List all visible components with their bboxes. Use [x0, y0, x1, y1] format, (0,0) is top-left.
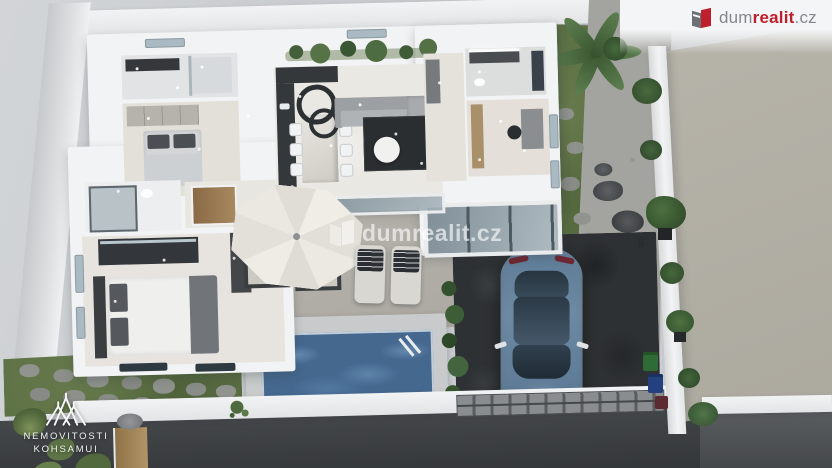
- dining-chair: [290, 163, 303, 176]
- waste-bin-green: [643, 352, 658, 371]
- umbrella-hub: [293, 233, 301, 241]
- potted-plant: [678, 368, 700, 388]
- sun-lounger: [354, 245, 386, 304]
- waste-bin-blue: [648, 374, 663, 393]
- dining-chair: [289, 123, 302, 136]
- shower: [89, 185, 138, 232]
- headboard: [93, 276, 107, 358]
- agency-line2: KOHSAMUI: [33, 443, 98, 456]
- waste-bin-dark: [655, 396, 668, 409]
- wardrobe: [127, 105, 199, 127]
- floorplan-render-scene: dumrealit.cz dumrealit.cz NEMOVITOSTI KO…: [0, 0, 832, 468]
- window: [550, 160, 560, 188]
- dumrealit-cube-icon: [692, 6, 712, 30]
- lounger-towel: [393, 250, 420, 273]
- agency-line1: NEMOVITOSTI: [23, 430, 108, 443]
- kitchen-sink: [280, 103, 290, 109]
- brand-prefix: dum: [719, 8, 753, 27]
- desk: [521, 109, 544, 150]
- potted-plant: [666, 310, 694, 334]
- pillow: [173, 134, 195, 149]
- wood-wardrobe: [471, 104, 485, 168]
- master-wardrobe: [98, 237, 199, 266]
- lounger-towel: [357, 249, 384, 272]
- window: [76, 307, 86, 339]
- car-rear-window: [515, 271, 569, 299]
- stepping-stones: [19, 364, 39, 378]
- street-right: [700, 408, 832, 468]
- kitchen-counter-top: [276, 66, 338, 84]
- pillow: [110, 318, 129, 346]
- ceiling-lights: [136, 67, 139, 70]
- blanket: [189, 275, 219, 354]
- potted-plant: [660, 262, 684, 284]
- front-wall-right: [702, 395, 832, 414]
- potted-plant: [632, 78, 662, 104]
- doormat-walkway: [113, 427, 148, 468]
- watermark: dumrealit.cz: [330, 218, 502, 248]
- master-bed: [93, 273, 225, 358]
- mountain-peaks-icon: [40, 390, 92, 430]
- window: [145, 38, 185, 48]
- brand-suffix: .cz: [795, 8, 817, 27]
- shower: [191, 57, 232, 94]
- window: [195, 363, 235, 372]
- shower-glass: [531, 51, 544, 91]
- brand-wordmark: dumrealit.cz: [719, 8, 817, 28]
- bathroom-vanity: [125, 58, 179, 71]
- wardrobe-mirror: [100, 239, 196, 245]
- dining-chair: [340, 164, 353, 177]
- window: [549, 114, 559, 148]
- cube-outline-icon: [330, 218, 354, 248]
- pool-ladder: [398, 338, 414, 357]
- car-roof: [514, 297, 570, 345]
- rock: [611, 210, 644, 233]
- stepping-stones: [557, 108, 574, 120]
- pillow: [109, 284, 128, 312]
- bathroom-vanity: [469, 51, 519, 63]
- hall-cabinet: [425, 59, 440, 103]
- sun-lounger: [390, 246, 422, 305]
- brand-accent: realit: [753, 8, 795, 27]
- pillow: [147, 134, 169, 149]
- logo-dumrealit: dumrealit.cz: [692, 6, 817, 30]
- dining-chair: [290, 143, 303, 156]
- potted-plant: [640, 140, 662, 160]
- logo-nemovitosti-kohsamui: NEMOVITOSTI KOHSAMUI: [16, 390, 116, 456]
- wooden-door: [191, 185, 238, 226]
- plant-pot: [674, 332, 686, 342]
- car-windshield: [513, 345, 571, 379]
- window: [119, 363, 167, 372]
- watermark-text: dumrealit.cz: [362, 220, 502, 247]
- bed: [143, 130, 202, 187]
- gate-rail: [457, 400, 663, 407]
- potted-plant-monstera: [646, 196, 686, 230]
- dining-chair: [340, 144, 353, 157]
- window: [74, 255, 84, 293]
- window: [347, 29, 387, 39]
- plant-pot: [658, 228, 672, 240]
- potted-plant: [688, 402, 718, 426]
- wall-lamp: [638, 239, 644, 247]
